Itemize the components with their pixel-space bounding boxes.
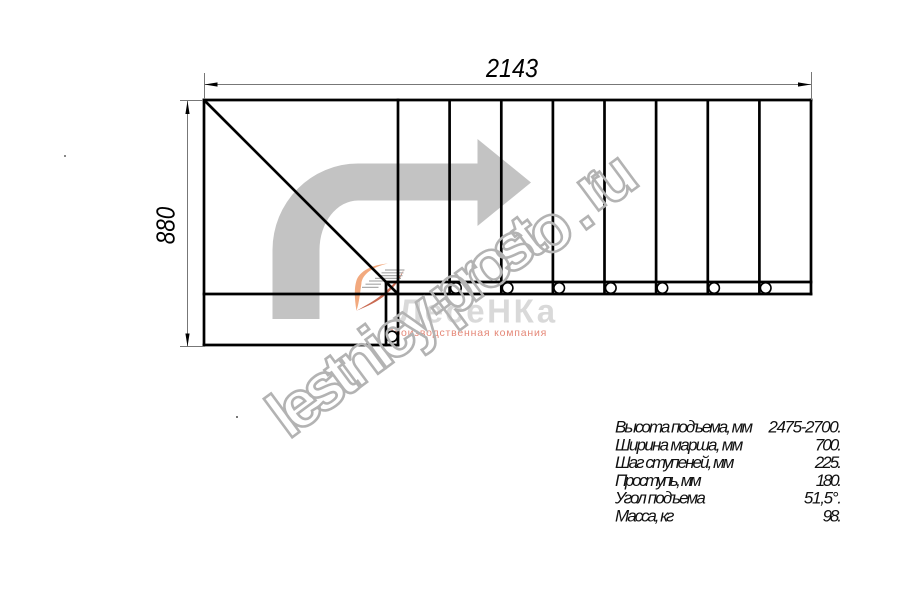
svg-text:Масса, кг: Масса, кг	[615, 507, 674, 526]
svg-text:225.: 225.	[814, 453, 842, 472]
svg-text:51,5°.: 51,5°.	[804, 489, 842, 508]
svg-text:Ширина марша, мм: Ширина марша, мм	[615, 435, 744, 454]
svg-text:180.: 180.	[816, 471, 842, 490]
svg-text:Проступь, мм: Проступь, мм	[615, 471, 702, 490]
svg-text:Шаг ступеней, мм: Шаг ступеней, мм	[615, 453, 735, 472]
svg-text:98.: 98.	[823, 507, 842, 526]
svg-text:Угол подъема: Угол подъема	[614, 489, 706, 508]
svg-text:880: 880	[151, 206, 181, 244]
svg-text:2475-2700.: 2475-2700.	[767, 418, 842, 437]
svg-text:700.: 700.	[815, 435, 842, 454]
svg-text:Высота подъема, мм: Высота подъема, мм	[615, 418, 753, 437]
svg-text:2143: 2143	[485, 53, 538, 83]
